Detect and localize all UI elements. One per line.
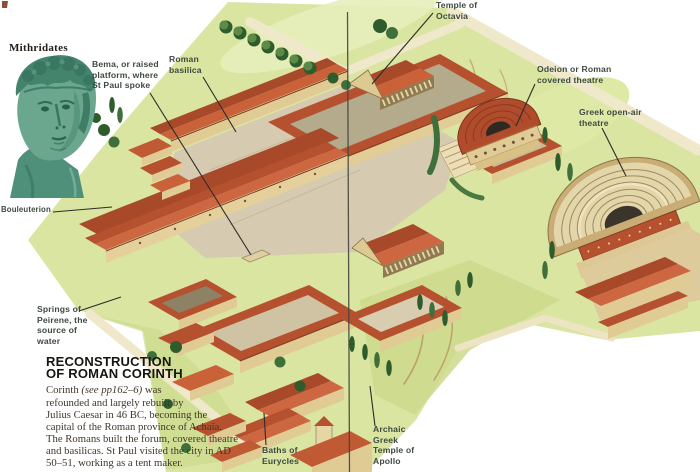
label-roman-basilica: Roman basilica — [169, 54, 202, 75]
label-mithridates: Mithridates — [9, 42, 68, 54]
label-temple-octavia: Temple of Octavia — [436, 0, 477, 21]
caption-page-reference: (see pp162–6) — [81, 384, 142, 396]
label-baths-eurycles: Baths of Eurycles — [262, 445, 299, 466]
label-odeion: Odeion or Roman covered theatre — [537, 64, 611, 85]
label-bouleuterion: Bouleuterion — [1, 205, 51, 216]
caption-body: Corinth (see pp162–6) was refounded and … — [46, 384, 240, 469]
caption-block: RECONSTRUCTION OF ROMAN CORINTH Corinth … — [46, 356, 240, 469]
corinth-reconstruction-page: Mithridates Bema, or raised platform, wh… — [0, 0, 700, 472]
label-bema: Bema, or raised platform, where St Paul … — [92, 59, 159, 91]
label-temple-apollo: Archaic Greek Temple of Apollo — [373, 424, 414, 466]
corner-smudge — [2, 1, 8, 8]
label-springs-peirene: Springs of Peirene, the source of water — [37, 304, 88, 346]
caption-title-line2: OF ROMAN CORINTH — [46, 368, 240, 380]
label-greek-theatre: Greek open-air theatre — [579, 107, 642, 128]
west-trees — [91, 97, 123, 148]
caption-body-start: Corinth — [46, 384, 81, 396]
